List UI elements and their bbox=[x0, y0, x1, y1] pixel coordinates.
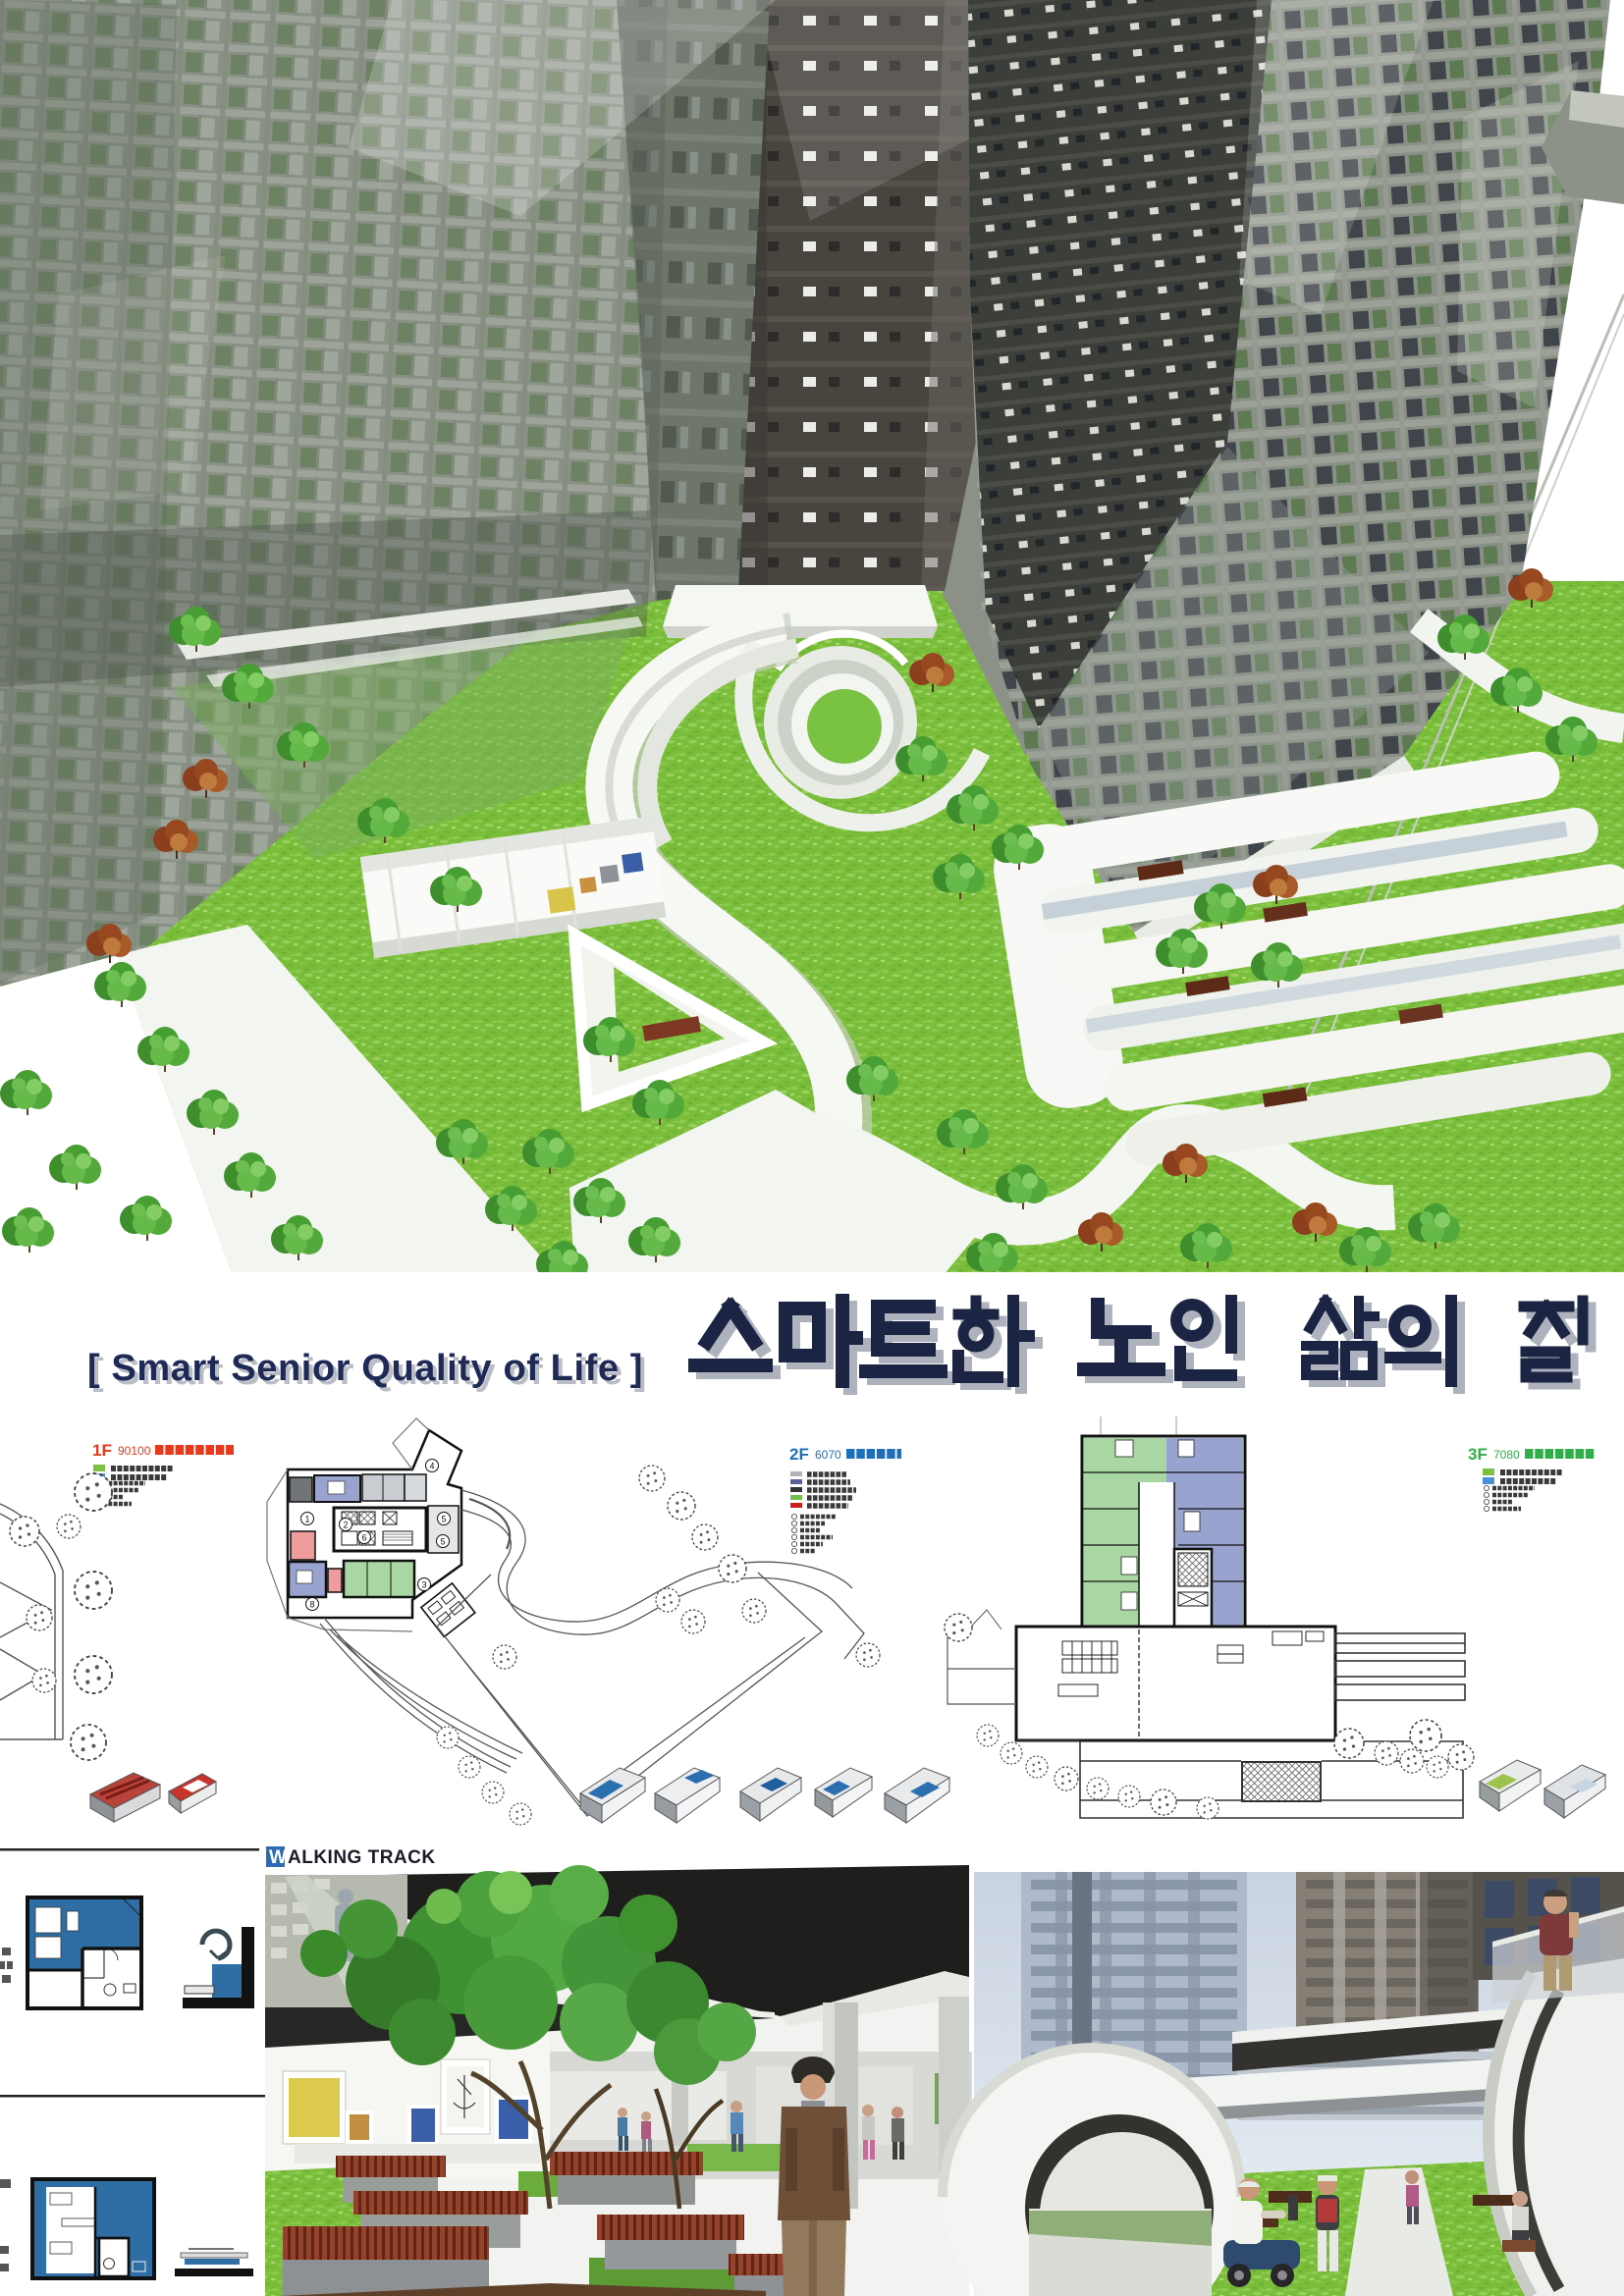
svg-text:1: 1 bbox=[304, 1515, 309, 1524]
svg-text:8: 8 bbox=[309, 1600, 314, 1610]
svg-text:4: 4 bbox=[429, 1462, 434, 1471]
svg-text:1F: 1F bbox=[92, 1441, 112, 1460]
svg-text:2F: 2F bbox=[789, 1445, 809, 1464]
svg-text:5: 5 bbox=[441, 1515, 446, 1524]
svg-text:W: W bbox=[269, 1847, 287, 1868]
svg-text:[ Smart Senior Quality of Life: [ Smart Senior Quality of Life ] bbox=[87, 1348, 643, 1389]
svg-text:6070: 6070 bbox=[815, 1448, 841, 1462]
svg-text:5: 5 bbox=[440, 1537, 445, 1547]
svg-text:3: 3 bbox=[421, 1580, 426, 1590]
svg-text:90100: 90100 bbox=[118, 1444, 151, 1458]
svg-text:6: 6 bbox=[361, 1533, 366, 1543]
svg-text:3F: 3F bbox=[1468, 1445, 1488, 1464]
svg-text:2: 2 bbox=[343, 1521, 348, 1530]
svg-text:7080: 7080 bbox=[1493, 1448, 1520, 1462]
svg-text:ALKING TRACK: ALKING TRACK bbox=[288, 1847, 436, 1868]
